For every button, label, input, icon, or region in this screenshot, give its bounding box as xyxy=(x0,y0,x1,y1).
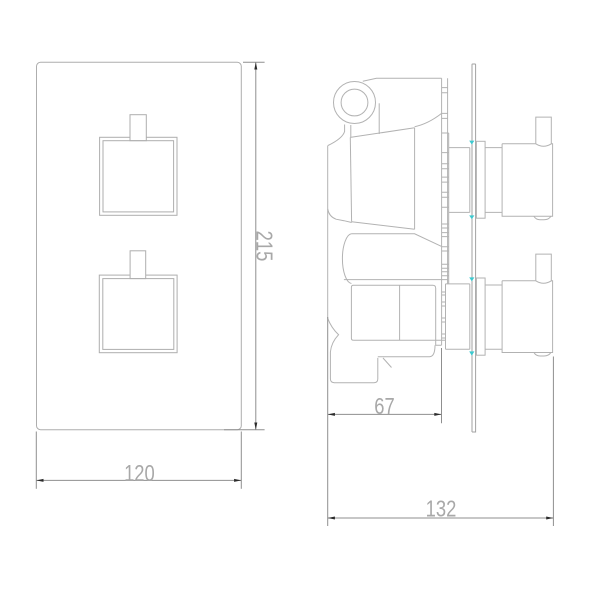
svg-text:215: 215 xyxy=(251,231,276,262)
svg-text:132: 132 xyxy=(426,497,457,522)
svg-text:67: 67 xyxy=(374,394,394,419)
svg-text:120: 120 xyxy=(124,461,155,486)
